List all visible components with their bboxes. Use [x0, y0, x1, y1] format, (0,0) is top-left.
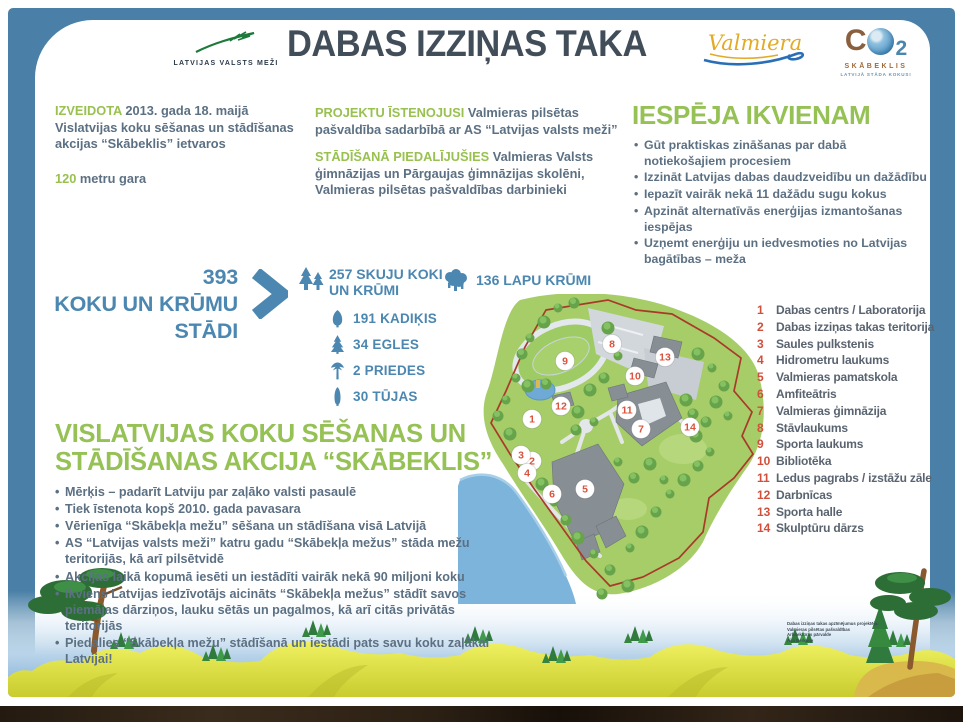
fact-planting: STĀDĪŠANĀ PIEDALĪJUŠIES Valmieras Valsts…	[315, 149, 620, 199]
legend-label: Valmieras ģimnāzija	[776, 403, 886, 420]
legend-label: Amfiteātris	[776, 386, 836, 403]
map-marker-8: 8	[603, 335, 622, 354]
legend-number: 14	[757, 520, 771, 537]
map-legend: 1Dabas centrs / Laboratorija2Dabas izziņ…	[757, 302, 935, 537]
campaign-bullet: Akcijas laikā kopumā iesēti un iestādīti…	[55, 569, 493, 585]
total-plants-label1: KOKU UN KRŪMU	[40, 291, 238, 318]
legend-number: 12	[757, 487, 771, 504]
map-marker-9: 9	[556, 352, 575, 371]
map-marker-14: 14	[681, 418, 700, 437]
legend-number: 5	[757, 369, 771, 386]
co2-globe-icon	[867, 28, 894, 55]
campaign-bullet: Mērķis – padarīt Latviju par zaļāko vals…	[55, 484, 493, 500]
credits-line: Aija Berkone	[787, 638, 897, 644]
valmiera-logo-text: Valmiera	[708, 31, 802, 55]
species-row: 30 TŪJAS	[330, 383, 437, 409]
svg-text:7: 7	[638, 424, 644, 436]
map-marker-10: 10	[626, 367, 645, 386]
svg-text:1: 1	[529, 414, 535, 426]
legend-item: 1Dabas centrs / Laboratorija	[757, 302, 935, 319]
svg-text:12: 12	[555, 401, 567, 413]
total-plants-stat: 393 KOKU UN KRŪMU STĀDI	[40, 264, 238, 345]
site-map: 1234567891011121314	[458, 294, 776, 604]
opportunity-bullet: Iepazīt vairāk nekā 11 dažādu sugu kokus	[634, 187, 930, 203]
total-plants-label2: STĀDI	[40, 318, 238, 345]
valmiera-signature: Valmiera	[698, 24, 816, 76]
opportunities-list: Gūt praktiskas zināšanas par dabā notiek…	[634, 138, 930, 269]
fact-created-label: IZVEIDOTA	[55, 103, 122, 118]
legend-item: 12Darbnīcas	[757, 487, 935, 504]
map-marker-13: 13	[656, 348, 675, 367]
fact-implemented: PROJEKTU ĪSTENOJUSI Valmieras pilsētas p…	[315, 105, 620, 138]
fact-planting-label: STĀDĪŠANĀ PIEDALĪJUŠIES	[315, 149, 489, 164]
svg-text:5: 5	[582, 484, 588, 496]
campaign-heading: VISLATVIJAS KOKU SĒŠANAS UN STĀDĪŠANAS A…	[55, 420, 495, 476]
pine-icon	[330, 361, 345, 380]
legend-number: 13	[757, 504, 771, 521]
species-label: 2 PRIEDES	[353, 363, 425, 378]
svg-text:8: 8	[609, 339, 615, 351]
legend-label: Ledus pagrabs / izstāžu zāle	[776, 470, 932, 487]
legend-number: 9	[757, 436, 771, 453]
co2-digit: 2	[895, 39, 907, 59]
svg-text:9: 9	[562, 356, 568, 368]
species-breakdown: 191 KADIĶIS34 EGLES2 PRIEDES30 TŪJAS	[330, 305, 437, 409]
legend-label: Sporta laukums	[776, 436, 863, 453]
total-plants-number: 393	[40, 264, 238, 291]
fact-length: 120 metru gara	[55, 171, 275, 188]
map-marker-7: 7	[632, 420, 651, 439]
legend-label: Sporta halle	[776, 504, 842, 521]
legend-label: Saules pulkstenis	[776, 336, 874, 353]
campaign-bullet: AS “Latvijas valsts meži” katru gadu “Sk…	[55, 535, 493, 567]
legend-item: 13Sporta halle	[757, 504, 935, 521]
legend-number: 7	[757, 403, 771, 420]
leafy-shrub-icon	[442, 268, 469, 292]
legend-number: 10	[757, 453, 771, 470]
legend-label: Darbnīcas	[776, 487, 832, 504]
species-row: 191 KADIĶIS	[330, 305, 437, 331]
svg-text:3: 3	[518, 450, 524, 462]
legend-label: Dabas izziņas takas teritorija	[776, 319, 934, 336]
legend-item: 3Saules pulkstenis	[757, 336, 935, 353]
svg-text:11: 11	[621, 405, 632, 417]
spruce-icon	[330, 335, 345, 354]
fact-implemented-label: PROJEKTU ĪSTENOJUSI	[315, 105, 464, 120]
species-row: 2 PRIEDES	[330, 357, 437, 383]
legend-item: 9Sporta laukums	[757, 436, 935, 453]
legend-item: 14Skulptūru dārzs	[757, 520, 935, 537]
map-marker-12: 12	[552, 397, 571, 416]
map-marker-3: 3	[512, 446, 531, 465]
fact-created: IZVEIDOTA 2013. gada 18. maijā Vislatvij…	[55, 103, 307, 153]
map-marker-5: 5	[576, 480, 595, 499]
opportunity-bullet: Izzināt Latvijas dabas daudzveidību un d…	[634, 170, 930, 186]
legend-number: 11	[757, 470, 771, 487]
site-map-art: 1234567891011121314	[458, 294, 776, 604]
legend-item: 8Stāvlaukums	[757, 420, 935, 437]
legend-number: 1	[757, 302, 771, 319]
lvm-logo: LATVIJAS VALSTS MEŽI	[166, 30, 286, 67]
map-marker-1: 1	[523, 410, 542, 429]
fact-length-text: metru gara	[80, 171, 146, 186]
legend-number: 6	[757, 386, 771, 403]
valmiera-logo: Valmiera	[698, 24, 816, 81]
map-marker-6: 6	[543, 485, 562, 504]
legend-item: 6Amfiteātris	[757, 386, 935, 403]
chevron-right-icon	[252, 269, 288, 319]
leafy-count: 136 LAPU KRŪMI	[476, 272, 591, 288]
legend-label: Bibliotēka	[776, 453, 831, 470]
svg-text:10: 10	[629, 371, 641, 383]
species-label: 34 EGLES	[353, 337, 419, 352]
fact-length-value: 120	[55, 171, 76, 186]
legend-number: 8	[757, 420, 771, 437]
lvm-twig-icon	[194, 30, 258, 54]
campaign-bullet: Tiek īstenota kopš 2010. gada pavasara	[55, 501, 493, 517]
legend-number: 2	[757, 319, 771, 336]
species-label: 30 TŪJAS	[353, 389, 418, 404]
poster-screenshot: LATVIJAS VALSTS MEŽI DABAS IZZIŅAS TAKA …	[0, 0, 963, 722]
credits-text: Dabas izziņas takas apzīmējumus projektē…	[787, 621, 897, 643]
legend-item: 2Dabas izziņas takas teritorija	[757, 319, 935, 336]
conifer-count-line1: 257 SKUJU KOKI	[329, 266, 443, 282]
campaign-bullet: Vērienīga “Skābekļa mežu” sēšana un stād…	[55, 518, 493, 534]
legend-item: 4Hidrometru laukums	[757, 352, 935, 369]
legend-item: 5Valmieras pamatskola	[757, 369, 935, 386]
species-label: 191 KADIĶIS	[353, 311, 437, 326]
legend-item: 10Bibliotēka	[757, 453, 935, 470]
species-row: 34 EGLES	[330, 331, 437, 357]
svg-text:6: 6	[549, 489, 555, 501]
legend-item: 11Ledus pagrabs / izstāžu zāle	[757, 470, 935, 487]
campaign-list: Mērķis – padarīt Latviju par zaļāko vals…	[55, 484, 493, 668]
juniper-icon	[330, 309, 345, 328]
co2-logo: C 2 SKĀBEKLIS LATVIJĀ STĀDA KOKUS!	[833, 26, 919, 77]
legend-label: Hidrometru laukums	[776, 352, 889, 369]
thuja-icon	[330, 387, 345, 406]
conifer-stat: 257 SKUJU KOKI UN KRŪMI	[298, 266, 443, 298]
map-marker-11: 11	[618, 401, 637, 420]
opportunity-bullet: Gūt praktiskas zināšanas par dabā notiek…	[634, 138, 930, 169]
co2-letter-c: C	[845, 26, 867, 56]
page-title: DABAS IZZIŅAS TAKA	[287, 23, 647, 65]
campaign-bullet: Ikviens Latvijas iedzīvotājs aicināts “S…	[55, 586, 493, 634]
lvm-logo-label: LATVIJAS VALSTS MEŽI	[166, 60, 286, 67]
legend-number: 4	[757, 352, 771, 369]
conifer-count-line2: UN KRŪMI	[329, 282, 443, 298]
svg-text:4: 4	[524, 468, 530, 480]
svg-text:14: 14	[684, 422, 696, 434]
opportunities-heading: IESPĒJA IKVIENAM	[632, 100, 870, 131]
co2-label: SKĀBEKLIS	[833, 63, 919, 70]
opportunity-bullet: Uzņemt enerģiju un iedvesmoties no Latvi…	[634, 236, 930, 267]
campaign-bullet: Piedalies “Skābekļa mežu” stādīšanā un i…	[55, 635, 493, 667]
floor-strip	[0, 706, 963, 722]
conifer-trees-icon	[298, 266, 324, 292]
legend-label: Valmieras pamatskola	[776, 369, 897, 386]
opportunity-bullet: Apzināt alternatīvās enerģijas izmantoša…	[634, 204, 930, 235]
legend-label: Stāvlaukums	[776, 420, 848, 437]
co2-subline: LATVIJĀ STĀDA KOKUS!	[833, 72, 919, 77]
legend-item: 7Valmieras ģimnāzija	[757, 403, 935, 420]
legend-label: Skulptūru dārzs	[776, 520, 864, 537]
svg-text:13: 13	[659, 352, 671, 364]
map-marker-4: 4	[518, 464, 537, 483]
legend-number: 3	[757, 336, 771, 353]
leafy-stat: 136 LAPU KRŪMI	[442, 268, 591, 292]
legend-label: Dabas centrs / Laboratorija	[776, 302, 925, 319]
